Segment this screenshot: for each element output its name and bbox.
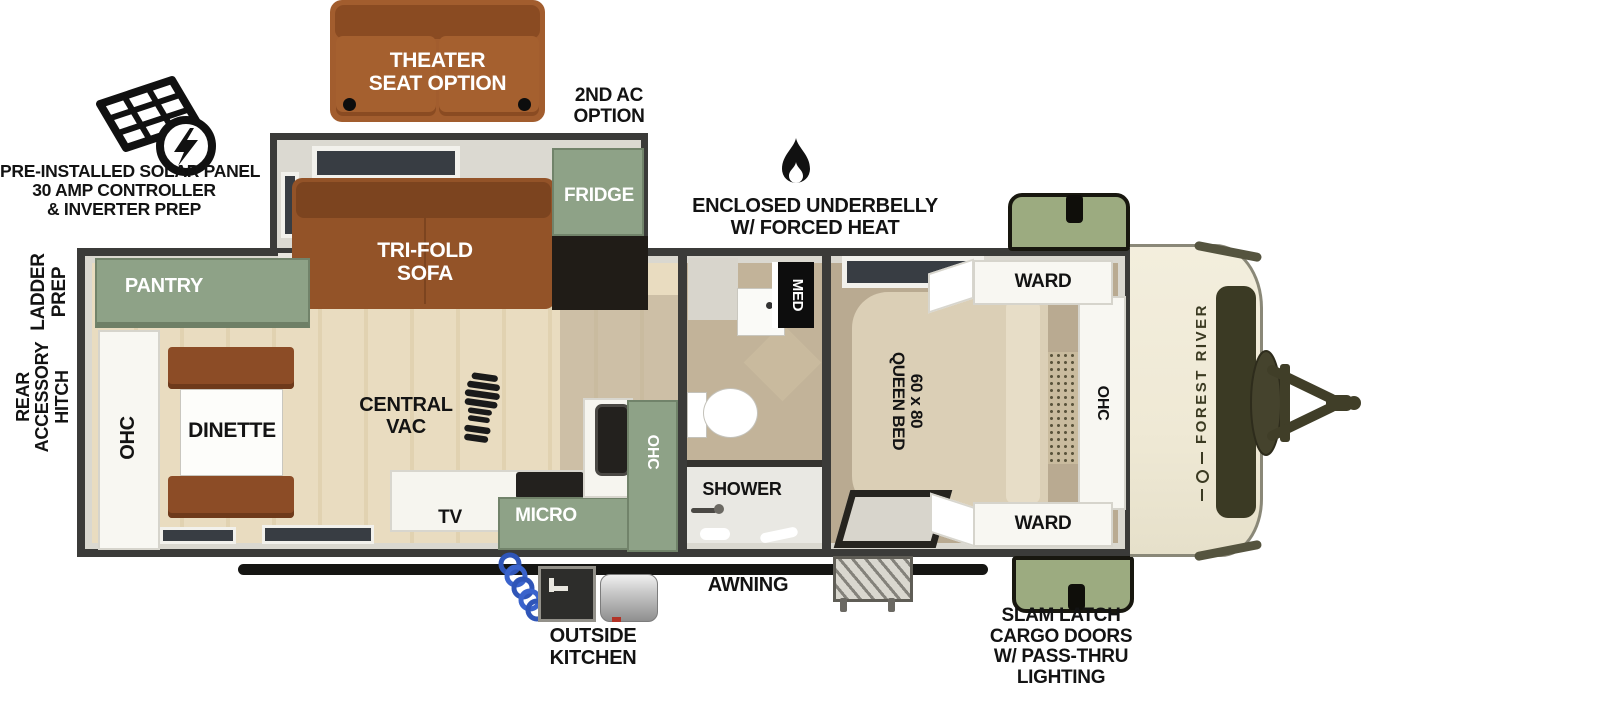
ladder-prep-line1: LADDER [29,237,50,347]
rear-hitch-line3: HITCH [53,337,72,457]
griddle-knob [549,578,554,592]
queen-bed-label: 60 x 80 QUEEN BED [885,346,925,456]
shower-head [714,504,724,514]
solar-line3: & INVERTER PREP [0,200,248,219]
sofa-line2: SOFA [360,263,490,286]
theater-line1: THEATER [340,50,535,73]
solar-callout: PRE-INSTALLED SOLAR PANEL 30 AMP CONTROL… [0,162,248,219]
kitchen-sink [595,404,630,476]
awning-label: AWNING [695,575,801,597]
central-vac-label: CENTRAL VAC [350,395,462,438]
fridge-label: FRIDGE [556,186,642,207]
slideout-window [312,146,460,180]
theater-seat-label: THEATER SEAT OPTION [340,50,535,95]
toilet-bowl [703,388,758,438]
outside-kitchen-tank [600,574,658,622]
shower-item-1 [700,528,730,540]
tv-label: TV [425,508,475,529]
rear-accessory-hitch-callout: REAR ACCESSORY HITCH [14,337,74,457]
bath-vanity-corner [688,258,738,320]
med-text: MED [789,279,805,311]
theater-line2: SEAT OPTION [340,73,535,96]
griddle-handle [552,586,568,591]
ohc-bedroom-text: OHC [1093,386,1110,421]
ward-bottom-label: WARD [973,514,1113,535]
solar-line1: PRE-INSTALLED SOLAR PANEL [0,162,248,181]
ward-top-label: WARD [973,272,1113,293]
ohc-rear-label: OHC [117,398,141,478]
outside-kitchen-griddle [538,566,596,622]
central-vac-line2: VAC [350,417,462,439]
brand-mark: FOREST RIVER [1191,287,1213,517]
sofa-line1: TRI-FOLD [360,240,490,263]
window-rear-bottom-1 [160,527,236,544]
slam-latch-line3: W/ PASS-THRU [972,647,1150,668]
pantry-label: PANTRY [108,276,220,298]
ladder-prep-line2: PREP [50,237,71,347]
rear-hitch-line1: REAR [14,337,33,457]
sofa-back [296,182,551,218]
step-foot-left [840,598,847,612]
central-vac-line1: CENTRAL [350,395,462,417]
tongue-hitch [1250,350,1362,456]
bath-wall-right [822,256,831,549]
dinette-bench-bottom [168,476,294,518]
ohc-bedroom-label: OHC [1092,368,1112,438]
brand-text: FOREST RIVER [1194,303,1210,444]
micro-label: MICRO [500,506,592,527]
dinette-label: DINETTE [157,420,307,443]
queen-bed-line1: 60 x 80 [907,346,925,456]
bed-pillows [1006,300,1040,504]
bed-headboard-mesh [1048,352,1078,464]
slam-latch-line2: CARGO DOORS [972,627,1150,648]
slam-latch-line4: LIGHTING [972,668,1150,689]
shower-label: SHOWER [687,480,797,499]
shower-threshold [687,460,822,467]
second-ac-callout: 2ND AC OPTION [556,86,662,127]
ohc-kitchen-label: OHC [642,417,662,487]
second-ac-line2: OPTION [556,107,662,128]
fridge-counter [552,236,648,310]
step-foot-right [888,598,895,612]
cargo-latch-top [1066,195,1083,223]
outside-kitchen-line1: OUTSIDE [533,626,653,648]
bath-wall-left [678,256,687,549]
dinette-bench-top [168,347,294,389]
forest-river-emblem [1196,470,1209,483]
tank-valve-mark [612,617,621,622]
underbelly-line1: ENCLOSED UNDERBELLY [685,196,945,218]
entry-steps [833,556,913,602]
floorplan-stage: PRE-INSTALLED SOLAR PANEL 30 AMP CONTROL… [0,0,1600,706]
outside-kitchen-callout: OUTSIDE KITCHEN [533,626,653,669]
cupholder-left [343,98,356,111]
underbelly-line2: W/ FORCED HEAT [685,218,945,240]
queen-bed-line2: QUEEN BED [888,346,906,456]
slam-latch-callout: SLAM LATCH CARGO DOORS W/ PASS-THRU LIGH… [972,606,1150,688]
flame-icon [776,138,816,192]
trifold-sofa-label: TRI-FOLD SOFA [360,240,490,285]
brand-dash-left [1201,489,1203,501]
slam-latch-line1: SLAM LATCH [972,606,1150,627]
second-ac-line1: 2ND AC [556,86,662,107]
solar-line2: 30 AMP CONTROLLER [0,181,248,200]
ladder-prep-callout: LADDER PREP [29,237,71,347]
ohc-rear-text: OHC [118,416,140,460]
med-label: MED [787,263,807,327]
rear-hitch-line2: ACCESSORY [33,337,52,457]
outside-kitchen-line2: KITCHEN [533,648,653,670]
window-rear-bottom-2 [262,525,374,544]
theater-seat-back [335,5,540,39]
underbelly-callout: ENCLOSED UNDERBELLY W/ FORCED HEAT [685,196,945,239]
brand-dash-right [1201,452,1203,464]
tv-unit [516,472,584,499]
ohc-kitchen-text: OHC [643,435,660,470]
cupholder-right [518,98,531,111]
